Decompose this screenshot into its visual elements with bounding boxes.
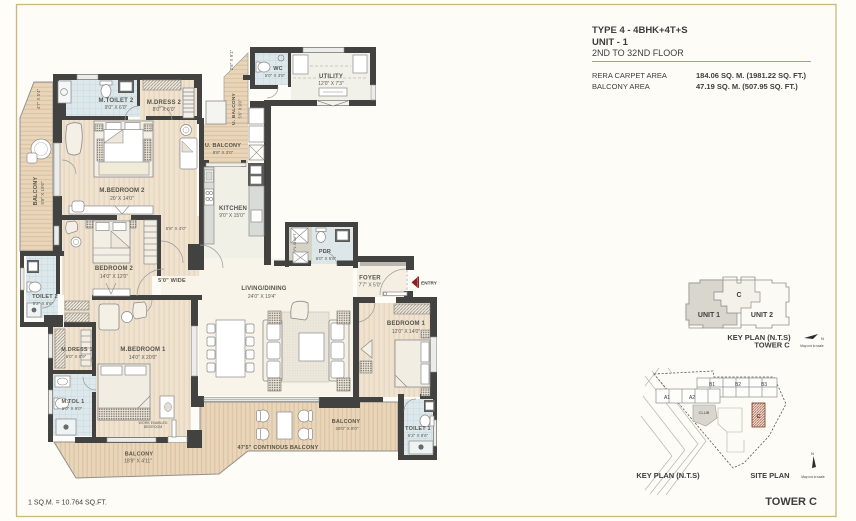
svg-text:CLUB: CLUB: [699, 410, 710, 415]
svg-text:5'0" WIDE: 5'0" WIDE: [158, 278, 186, 284]
svg-text:5'2" X 8'6": 5'2" X 8'6": [33, 301, 54, 306]
svg-text:20' X 14'0": 20' X 14'0": [110, 196, 134, 202]
svg-text:N: N: [821, 336, 824, 341]
svg-text:UNIT 1: UNIT 1: [698, 312, 720, 319]
svg-text:12'0" X 14'0": 12'0" X 14'0": [392, 329, 420, 335]
svg-text:1 SQ.M. = 10.764 SQ.FT.: 1 SQ.M. = 10.764 SQ.FT.: [28, 500, 107, 507]
svg-text:BALCONY AREA: BALCONY AREA: [592, 82, 650, 91]
svg-text:TOILET 1: TOILET 1: [405, 426, 431, 432]
svg-text:9'0" X 6'0": 9'0" X 6'0": [105, 105, 128, 111]
svg-text:A1: A1: [664, 395, 670, 401]
svg-text:M.TOL 1: M.TOL 1: [62, 399, 85, 405]
svg-text:5'6" X 9'0": 5'6" X 9'0": [238, 99, 243, 119]
svg-text:UTILITY: UTILITY: [319, 74, 343, 80]
svg-text:6'0" X 8'9": 6'0" X 8'9": [66, 354, 87, 359]
svg-text:8'8" X 3'0": 8'8" X 3'0": [213, 150, 234, 155]
svg-text:M.DRESS 1: M.DRESS 1: [61, 347, 92, 353]
svg-text:47'5" CONTINOUS BALCONY: 47'5" CONTINOUS BALCONY: [238, 445, 319, 451]
svg-text:5'0" X 3'8": 5'0" X 3'8": [265, 73, 286, 78]
svg-text:BALCONY: BALCONY: [33, 177, 39, 206]
svg-text:6'0" X 9'0": 6'0" X 9'0": [62, 406, 83, 411]
svg-text:PL.SHAFT: PL.SHAFT: [293, 233, 297, 251]
svg-text:C: C: [736, 292, 741, 299]
svg-text:BEDROOM 2: BEDROOM 2: [95, 266, 134, 272]
svg-text:UNIT - 1: UNIT - 1: [592, 37, 629, 48]
svg-text:M.BEDROOM 2: M.BEDROOM 2: [99, 188, 145, 194]
svg-text:BEDROOM 1: BEDROOM 1: [387, 321, 426, 327]
svg-text:24'0" X 19'4": 24'0" X 19'4": [248, 294, 276, 300]
svg-text:B1: B1: [709, 382, 715, 388]
svg-text:ENTRY: ENTRY: [421, 280, 438, 285]
svg-text:M.DRESS 2: M.DRESS 2: [147, 100, 182, 106]
svg-text:5'6" X 19'6": 5'6" X 19'6": [40, 181, 45, 204]
svg-text:TOWER C: TOWER C: [765, 496, 817, 508]
svg-text:14'0" X 20'0": 14'0" X 20'0": [129, 355, 157, 361]
svg-text:14'0" X 12'0": 14'0" X 12'0": [100, 274, 128, 280]
svg-text:Map not to scale: Map not to scale: [801, 475, 825, 479]
svg-text:28'0" X 8'0": 28'0" X 8'0": [336, 426, 359, 431]
svg-text:47.19 SQ. M. (507.95 SQ. FT.): 47.19 SQ. M. (507.95 SQ. FT.): [696, 82, 798, 91]
svg-text:BEDROOM: BEDROOM: [144, 425, 163, 429]
svg-text:Map not to scale: Map not to scale: [800, 344, 824, 348]
svg-text:7'7" X 5'0": 7'7" X 5'0": [359, 283, 382, 289]
svg-text:B2: B2: [735, 382, 741, 388]
svg-text:RERA CARPET AREA: RERA CARPET AREA: [592, 71, 667, 80]
svg-text:FOYER: FOYER: [359, 276, 381, 282]
svg-text:4'7" X 5'4": 4'7" X 5'4": [36, 88, 41, 109]
svg-text:184.06 SQ. M. (1981.22 SQ. FT.: 184.06 SQ. M. (1981.22 SQ. FT.): [696, 71, 807, 80]
svg-text:U. BALCONY: U. BALCONY: [231, 92, 237, 124]
svg-text:6'0" X 5'6": 6'0" X 5'6": [316, 256, 337, 261]
svg-text:2'6" X 9'1": 2'6" X 9'1": [229, 49, 234, 70]
svg-text:8'0" X 6'0": 8'0" X 6'0": [153, 107, 176, 113]
svg-text:2ND TO 32ND FLOOR: 2ND TO 32ND FLOOR: [592, 48, 684, 58]
svg-text:TOWER C: TOWER C: [754, 341, 790, 350]
svg-text:SITE PLAN: SITE PLAN: [750, 471, 789, 480]
svg-text:M.TOILET 2: M.TOILET 2: [99, 98, 134, 104]
svg-text:WC: WC: [273, 66, 283, 72]
svg-text:BALCONY: BALCONY: [332, 419, 361, 425]
svg-text:9'0" X 15'0": 9'0" X 15'0": [219, 213, 245, 219]
svg-text:A2: A2: [689, 395, 695, 401]
svg-text:KITCHEN: KITCHEN: [219, 206, 247, 212]
svg-text:BALCONY: BALCONY: [125, 452, 154, 458]
svg-text:C: C: [757, 414, 761, 420]
svg-text:M.BEDROOM 1: M.BEDROOM 1: [120, 347, 166, 353]
svg-text:KEY PLAN (N.T.S): KEY PLAN (N.T.S): [636, 471, 700, 480]
svg-text:LIVING/DINING: LIVING/DINING: [241, 286, 286, 292]
svg-text:N: N: [811, 451, 814, 456]
svg-text:12'0" X 7'3": 12'0" X 7'3": [318, 81, 344, 87]
svg-text:TYPE 4 - 4BHK+4T+S: TYPE 4 - 4BHK+4T+S: [592, 25, 688, 36]
svg-text:PDR: PDR: [319, 249, 331, 255]
svg-text:U. BALCONY: U. BALCONY: [205, 143, 241, 149]
svg-text:TOILET 2: TOILET 2: [32, 294, 58, 300]
svg-text:B3: B3: [761, 382, 767, 388]
svg-text:UNIT 2: UNIT 2: [751, 312, 773, 319]
svg-text:18'9" X 4'11": 18'9" X 4'11": [124, 459, 152, 465]
svg-text:5'2" X 8'6": 5'2" X 8'6": [408, 433, 429, 438]
svg-text:5'8" X 4'0": 5'8" X 4'0": [166, 226, 187, 231]
